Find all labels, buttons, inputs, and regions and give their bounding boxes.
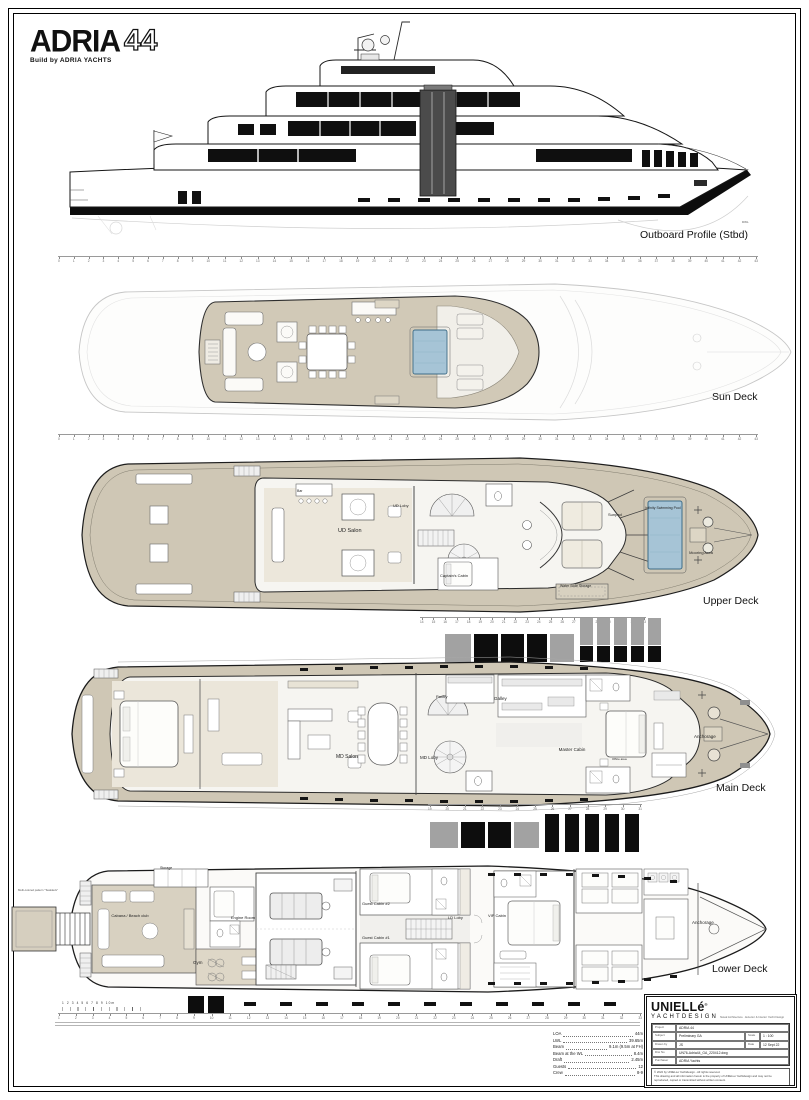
room-label-ld-loby: LD Loby (448, 916, 463, 921)
room-label-captains-cabin: Captain's Cabin (440, 574, 468, 579)
window-column-gray (614, 618, 627, 645)
window-bar-black (605, 814, 619, 852)
annotation-teak-pattern: Multi-colored pattern "Teakdeck" (14, 889, 62, 892)
room-label-galley: Galley (494, 696, 507, 701)
room-label-office-area: Office area (612, 758, 627, 761)
window-band-gray (514, 822, 539, 848)
room-label-ud-salon: UD Salon (338, 528, 362, 534)
room-label-storage: Storage (160, 866, 172, 870)
waterline-label: DWL (742, 221, 749, 224)
frame-ruler-mid-a: 1415161718192021222324252627282930313233 (420, 617, 646, 624)
scale-bar-label: 1 2 3 4 5 6 7 8 9 10m (62, 1001, 115, 1005)
field-label: Drawn by (652, 1041, 676, 1049)
window-square-black (188, 996, 204, 1014)
view-label-outboard-profile: Outboard Profile (Stbd) (640, 229, 748, 241)
window-column-gray (580, 618, 593, 645)
room-label-pool: Infinity Swimming Pool (645, 506, 681, 510)
window-column-gray (631, 618, 644, 645)
baseline-rule (55, 1025, 640, 1026)
outboard-profile-drawing (58, 12, 758, 262)
frame-ruler-profile: 0123456789101112131415161718192021222324… (58, 256, 758, 263)
designer-logo-sub: YACHTDESIGNNaval Architecture · Exterior… (651, 1014, 790, 1021)
field-label: Date (745, 1041, 760, 1049)
field-label: Subject (652, 1032, 676, 1040)
title-block-footnotes: © 2022 by UNIELLé Yachtdesign - All righ… (651, 1068, 790, 1085)
window-bar-black (545, 814, 559, 852)
window-square-black (208, 996, 224, 1014)
room-label-engine-room: Engine Room (228, 916, 258, 921)
sun-deck-plan (55, 266, 800, 438)
drawing-sheet: ADRIA 44 Build by ADRIA YACHTS (0, 0, 809, 1100)
lower-deck-plan (8, 853, 803, 1005)
title-block: UNIELLé® YACHTDESIGNNaval Architecture ·… (644, 994, 797, 1088)
view-label-sun-deck: Sun Deck (712, 391, 758, 403)
room-label-master-cabin: Master Cabin (558, 747, 586, 752)
room-label-anchorage-main: Anchorage (694, 734, 716, 739)
room-label-md-loby: MD Loby (420, 755, 438, 760)
principal-dimensions: LOA44m LWL39.65m Beam9.1m (9.5m at FH) B… (553, 1031, 643, 1077)
upper-deck-plan (50, 448, 805, 620)
window-band-black (488, 822, 511, 848)
window-band-gray (430, 822, 458, 848)
room-label-pantry: Pantry (436, 695, 448, 700)
view-label-upper-deck: Upper Deck (703, 595, 758, 607)
project-value: ADRIA 44 (676, 1024, 789, 1032)
window-bar-black (565, 814, 579, 852)
frame-ruler-mid-b: 19202122232425262728293031 (428, 804, 642, 811)
drawing-number-value: UN76-Adria44_GA_220412.dwg (676, 1049, 789, 1057)
room-label-water-slide-storage: Water Slide Storage (560, 584, 591, 588)
view-label-lower-deck: Lower Deck (712, 963, 767, 975)
field-label: Purchaser (652, 1057, 676, 1065)
room-label-cabana: Cabana / Beach club (108, 914, 152, 919)
room-label-guest-cabin-1: Guest Cabin #1 (362, 936, 390, 941)
room-label-md-salon: MD Salon (336, 755, 358, 761)
porthole-row (244, 1002, 640, 1006)
room-label-mooring-area: Mooring Area (686, 551, 716, 556)
window-column-gray (597, 618, 610, 645)
window-band-black (461, 822, 485, 848)
window-bar-black (585, 814, 599, 852)
purchaser-value: ADRIA Yachts (676, 1057, 789, 1065)
window-bar-black (625, 814, 639, 852)
room-label-vip-cabin: VIP Cabin (488, 914, 506, 919)
date-value: 12 Sept 22 (760, 1041, 789, 1049)
room-label-sunpad: Sunpad (608, 513, 622, 518)
subject-value: Preliminary GA (676, 1032, 745, 1040)
frame-ruler-sun-deck: 0123456789101112131415161718192021222324… (58, 434, 758, 441)
designer-address: Naval Architecture · Exterior & Interior… (720, 1015, 784, 1019)
scale-value: 1 : 100 (760, 1032, 789, 1040)
field-label: Drw No (652, 1049, 676, 1057)
registered-mark: ® (705, 1002, 708, 1007)
baseline-rule (55, 1022, 640, 1023)
window-column-gray (648, 618, 661, 645)
field-label: Scale (745, 1032, 760, 1040)
room-label-gym: Gym (193, 960, 203, 965)
room-label-bar: Bar (297, 489, 302, 493)
designer-logo: UNIELLé® (651, 1001, 790, 1014)
field-label: Project (652, 1024, 676, 1032)
room-label-guest-cabin-2: Guest Cabin #2 (362, 902, 390, 907)
room-label-anchorage-lower: Anchorage (692, 920, 714, 925)
room-label-ud-loby: UD Loby (393, 504, 409, 509)
footnote-legal: This drawing and all information herein … (654, 1075, 787, 1083)
frame-ruler-bottom: 1234567891011121314151617181920212223242… (58, 1013, 642, 1020)
view-label-main-deck: Main Deck (716, 782, 766, 794)
title-block-table: Project ADRIA 44 Subject Preliminary GA … (651, 1023, 790, 1066)
drawn-by-value: JS (676, 1041, 745, 1049)
scale-bar-ticks (62, 1007, 141, 1011)
spec-row: Crew8-9 (553, 1070, 643, 1077)
